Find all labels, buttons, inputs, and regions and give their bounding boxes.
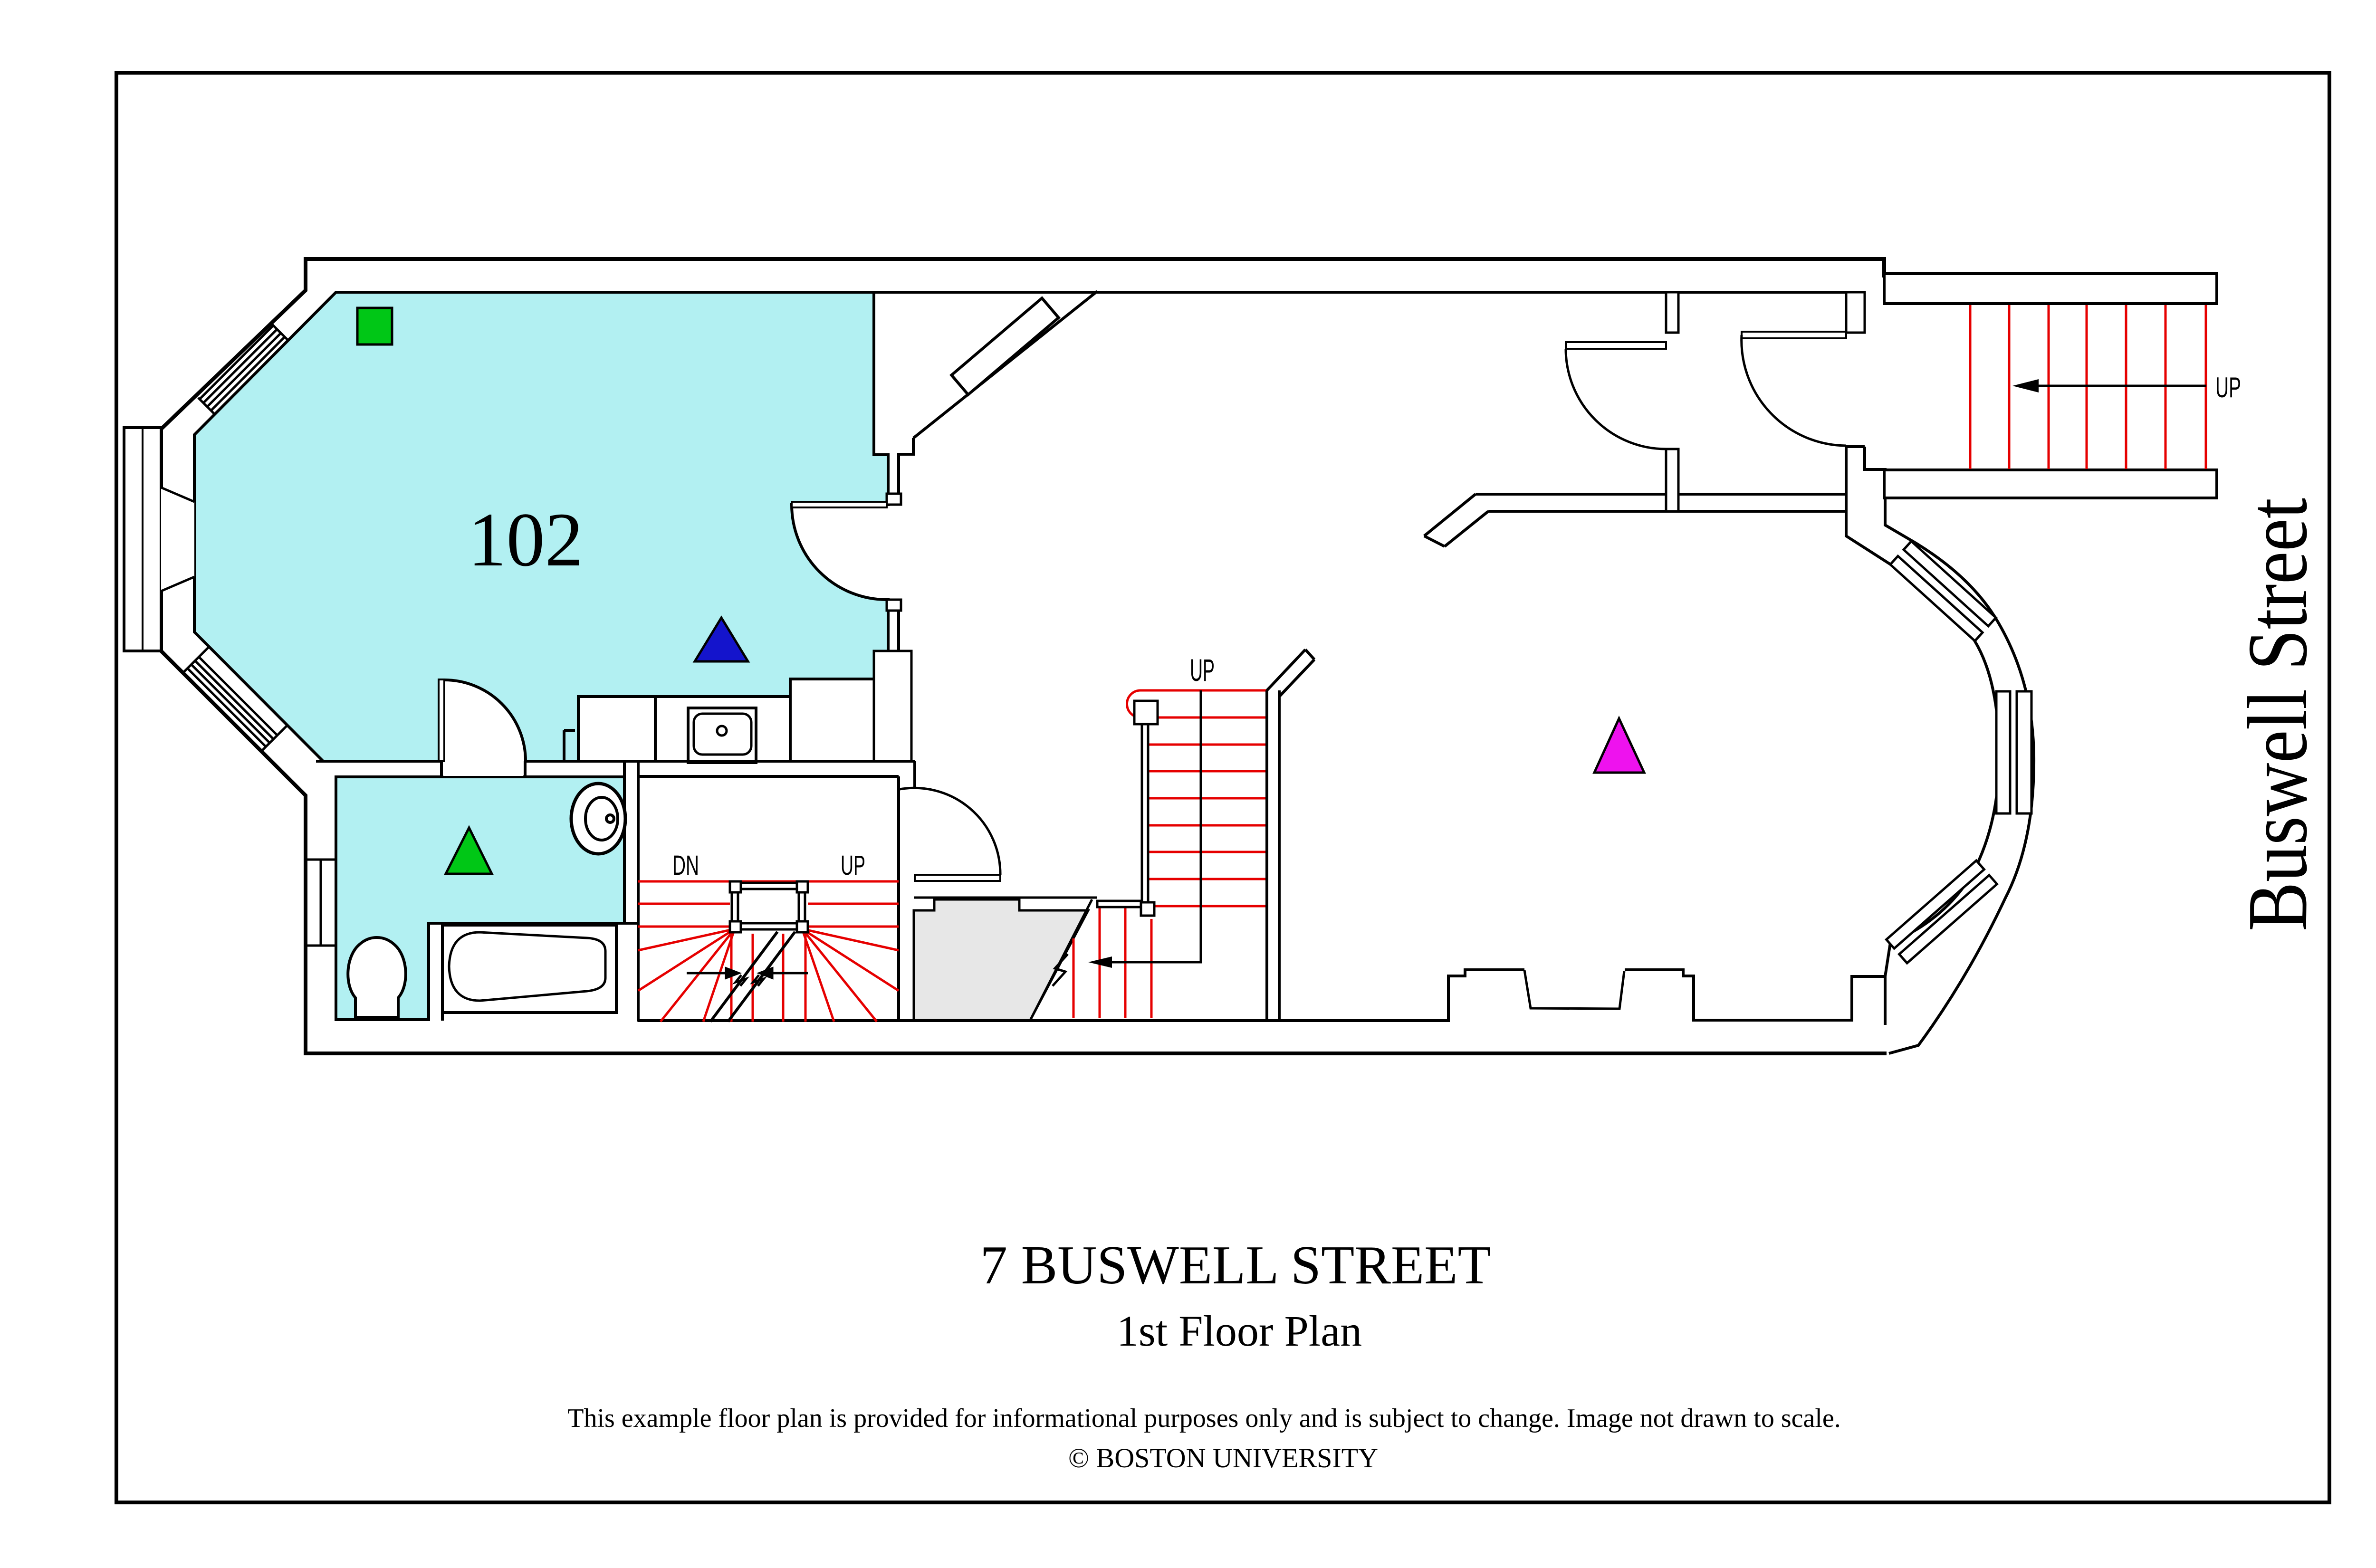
svg-text:UP: UP — [2215, 372, 2241, 403]
svg-text:DN: DN — [672, 850, 699, 881]
svg-text:UP: UP — [1190, 652, 1215, 688]
svg-text:102: 102 — [468, 497, 584, 583]
svg-text:1st Floor Plan: 1st Floor Plan — [1117, 1307, 1362, 1355]
svg-text:© BOSTON UNIVERSITY: © BOSTON UNIVERSITY — [1068, 1443, 1378, 1473]
svg-text:Buswell Street: Buswell Street — [2230, 498, 2325, 931]
svg-text:UP: UP — [841, 850, 865, 881]
svg-text:This example floor plan is pro: This example floor plan is provided for … — [567, 1404, 1841, 1433]
svg-text:7 BUSWELL STREET: 7 BUSWELL STREET — [980, 1235, 1491, 1295]
